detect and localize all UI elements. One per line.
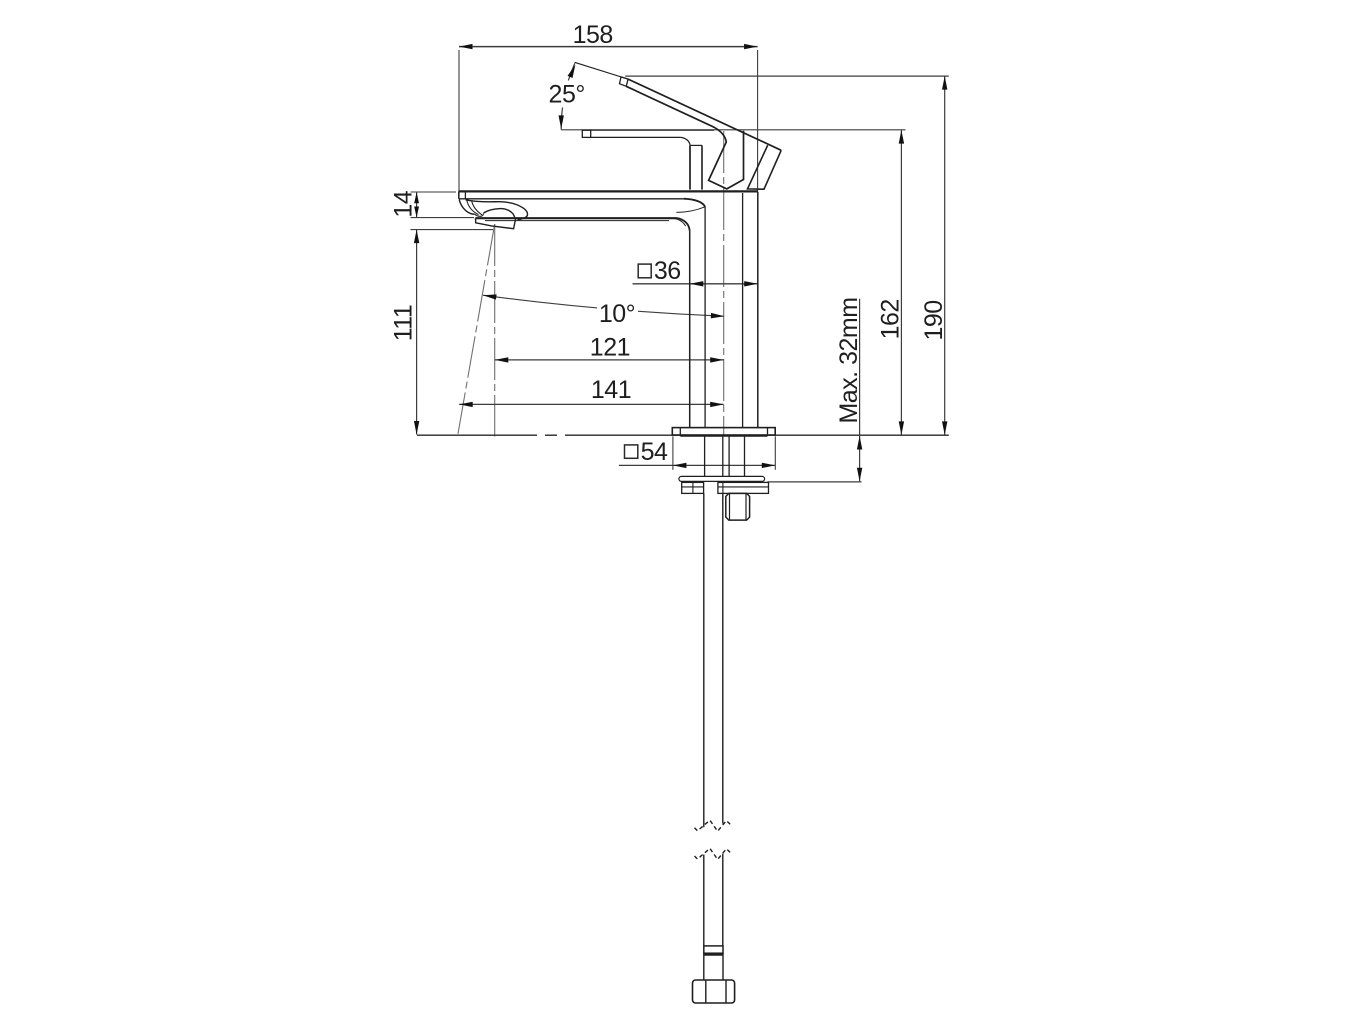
svg-text:162: 162 — [877, 299, 905, 339]
svg-text:141: 141 — [591, 376, 631, 404]
svg-text:36: 36 — [654, 257, 681, 285]
svg-text:190: 190 — [920, 300, 948, 340]
svg-text:25°: 25° — [549, 81, 585, 109]
svg-text:121: 121 — [590, 333, 630, 361]
svg-text:10°: 10° — [599, 300, 635, 328]
svg-text:54: 54 — [641, 438, 668, 466]
svg-text:111: 111 — [389, 305, 417, 342]
svg-text:Max. 32mm: Max. 32mm — [835, 297, 863, 423]
svg-text:14: 14 — [389, 190, 417, 217]
svg-text:158: 158 — [573, 21, 613, 49]
